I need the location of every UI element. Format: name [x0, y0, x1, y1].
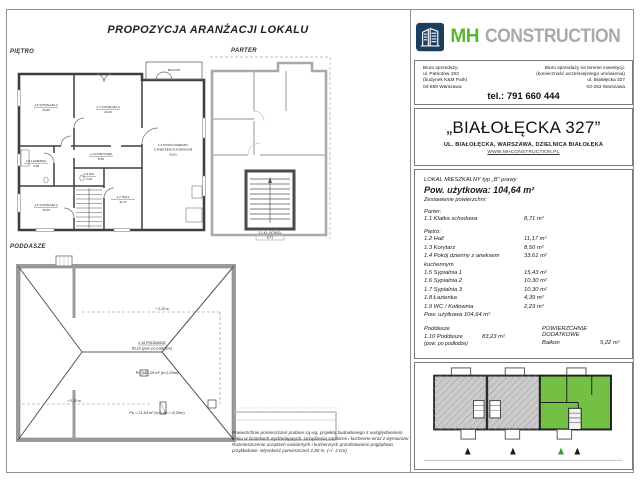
- room-area: 8,50: [98, 157, 104, 161]
- room-row: 1.5 Sypialnia 115,43 m²: [424, 269, 623, 277]
- room-row-label: 1.1 Klatka schodowa: [424, 215, 524, 223]
- usable-area-line: Pow. użytkowa: 104,64 m²: [424, 185, 623, 195]
- height-mark: + 2,20 m: [155, 307, 168, 311]
- room-row-area: 15,43 m²: [524, 269, 623, 277]
- logo-text-mh: MH: [450, 26, 479, 48]
- disclaimer-line: przykładowe. Wysokość pomieszczeń 2,80 m…: [232, 448, 409, 454]
- parter-stairwell: [246, 171, 294, 229]
- addr-line: 04-858 Warszawa: [423, 85, 467, 91]
- room-row-label: 1.10 Poddasze: [424, 334, 482, 340]
- room-label: 1.9 WC: [84, 172, 95, 176]
- room-row-label: Balkon: [542, 340, 600, 346]
- logo-text-construction: CONSTRUCTION: [485, 26, 620, 48]
- poddasze-column: Poddasze 1.10 Poddasze 83,23 m² (pow. po…: [424, 326, 542, 347]
- room-row-area: 33,61 m²: [524, 252, 623, 269]
- room-row-area: 5,22 m²: [600, 340, 620, 346]
- contact-box: Biuro sprzedaży: ul. Patriotów 193 (budy…: [414, 60, 633, 105]
- poddasze-roof-plan: + 2,20 m + 2,20 m 1.10 PODDASZE 83,23 (p…: [12, 252, 342, 450]
- room-area: 11,17: [119, 200, 127, 204]
- room-row-area: 83,23 m²: [482, 334, 505, 340]
- room-area: 10,30: [104, 110, 112, 114]
- room-row-label: 1.2 Hall: [424, 235, 524, 243]
- room-row-area: 8,71 m²: [524, 215, 623, 223]
- gray-units: [434, 376, 540, 430]
- room-area: 10,30: [42, 108, 50, 112]
- room-label: 1.7 SYPIALNIA 3: [96, 105, 120, 109]
- room-area: 2,23: [86, 177, 92, 181]
- room-row-area: 10,30 m²: [524, 277, 623, 285]
- stairs-area: 8,71: [267, 236, 273, 240]
- company-logo: MH CONSTRUCTION: [416, 17, 632, 57]
- room-label: 1.2 HALL: [117, 195, 130, 199]
- total-area-line: Pow. użytkowa 104,64 m²: [424, 312, 623, 318]
- details-box: LOKAL MIESZKALNY typ „B” prawy Pow. użyt…: [414, 169, 633, 359]
- room-label: 1.6 SYPIALNIA 2: [34, 103, 58, 107]
- stairs-label: 1.1 KL. SCHOD.: [258, 231, 281, 235]
- room-row-label: 1.4 Pokój dzienny z aneksem kuchennym: [424, 252, 524, 269]
- room-row-area: 2,23 m²: [524, 303, 623, 311]
- room-label: Z ANEKSEM KUCHENNYM: [154, 148, 193, 152]
- poddasze-walls: [18, 256, 234, 440]
- room-row: 1.7 Sypialnia 310,30 m²: [424, 286, 623, 294]
- footer-disclaimer: Powierzchnie pomieszczeń podane są wg. p…: [232, 430, 409, 454]
- arrangement-title: PROPOZYCJA ARANŻACJI LOKALU: [38, 24, 378, 36]
- property-address: UL. BIAŁOŁĘCKA, WARSZAWA, DZIELNICA BIAŁ…: [415, 142, 632, 148]
- panel-divider: [410, 9, 411, 472]
- balkon-label: BALKON: [168, 68, 180, 72]
- room-row-area: 8,50 m²: [524, 244, 623, 252]
- room-row-label: 1.9 WC / Kotłownia: [424, 303, 524, 311]
- height-mark: + 2,20 m: [67, 399, 80, 403]
- room-row-label: 1.3 Korytarz: [424, 244, 524, 252]
- room-label: 1.8 ŁAZIENKA: [26, 159, 47, 163]
- room-row-label: 1.8 Łazienka: [424, 294, 524, 302]
- onsite-office-address: Biuro sprzedaży na terenie inwestycji: (…: [536, 66, 625, 91]
- balconies-top: [451, 368, 586, 376]
- property-title-box: „BIAŁOŁĘCKA 327” UL. BIAŁOŁĘCKA, WARSZAW…: [414, 108, 633, 166]
- unit-type-line: LOKAL MIESZKALNY typ „B” prawy: [424, 177, 623, 183]
- room-row-area: 4,39 m²: [524, 294, 623, 302]
- room-row-area: 10,30 m²: [524, 286, 623, 294]
- summary-line: Zestawienie powierzchni:: [424, 197, 623, 203]
- room-area: 4,39: [33, 164, 39, 168]
- room-label: 1.4 POKÓJ DZIENNY: [158, 142, 188, 147]
- room-label: 1.5 SYPIALNIA 1: [34, 203, 58, 207]
- website-link: WWW.MHCONSTRUCTION.PL: [415, 150, 632, 155]
- phone-number: tel.: 791 660 444: [415, 91, 632, 102]
- property-name: „BIAŁOŁĘCKA 327”: [415, 118, 632, 138]
- room-row-label: 1.6 Sypialnia 2: [424, 277, 524, 285]
- room-row: Balkon 5,22 m²: [542, 340, 623, 346]
- poddasze-room-area: 83,23 (pow. po podłodze): [132, 347, 172, 351]
- room-row: 1.1 Klatka schodowa 8,71 m²: [424, 215, 623, 223]
- room-row: 1.2 Hall11,17 m²: [424, 235, 623, 243]
- room-area: 15,43: [42, 208, 50, 212]
- room-row-area: 11,17 m²: [524, 235, 623, 243]
- building-site-plan: [421, 366, 626, 466]
- additional-column: POWIERZCHNIE DODATKOWE Balkon 5,22 m²: [542, 326, 623, 347]
- entry-porches: [461, 429, 572, 439]
- room-row: 1.8 Łazienka4,39 m²: [424, 294, 623, 302]
- room-row: 1.4 Pokój dzienny z aneksem kuchennym33,…: [424, 252, 623, 269]
- room-row: 1.9 WC / Kotłownia2,23 m²: [424, 303, 623, 311]
- site-plan-box: [414, 362, 633, 470]
- addr-line: 03-253 Warszawa: [536, 85, 625, 91]
- room-row-label: 1.7 Sypialnia 3: [424, 286, 524, 294]
- poddasze-room-label: 1.10 PODDASZE: [138, 341, 166, 345]
- parter-floor-plan: 1.1 KL. SCHOD. 8,71: [208, 55, 332, 243]
- room-row: 1.3 Korytarz8,50 m²: [424, 244, 623, 252]
- room-label: 1.3 KORYTARZ: [90, 152, 112, 156]
- room-row: 1.10 Poddasze 83,23 m²: [424, 334, 542, 340]
- entrance-markers: [465, 448, 580, 455]
- room-row-label: 1.5 Sypialnia 1: [424, 269, 524, 277]
- section-additional: POWIERZCHNIE DODATKOWE: [542, 326, 623, 338]
- floor-label-pietro: PIĘTRO: [10, 49, 34, 55]
- floor-label-parter: PARTER: [231, 48, 257, 54]
- green-highlighted-unit: [540, 376, 611, 430]
- room-row: 1.6 Sypialnia 210,30 m²: [424, 277, 623, 285]
- section-poddasze: Poddasze: [424, 326, 542, 332]
- mh-logo-icon: [416, 22, 444, 52]
- floor-label-poddasze: PODDASZE: [10, 244, 46, 250]
- poddasze-note: (pow. po podłodze): [424, 341, 542, 347]
- addr-line: (budynek K&M Park): [423, 78, 467, 84]
- pietro-floor-plan: BALKON 1.6 SYPIALNIA 2 10,30 1.7 SYPIALN…: [16, 58, 208, 238]
- sales-office-address: Biuro sprzedaży: ul. Patriotów 193 (budy…: [423, 66, 467, 91]
- pu-low-label: Pu = 21,94 m² (h>1,40 / <2,20m): [129, 411, 185, 415]
- room-area: 33,61: [169, 153, 177, 157]
- pu-high-label: Pu = 61,29 m² (h>2,20m): [136, 371, 179, 375]
